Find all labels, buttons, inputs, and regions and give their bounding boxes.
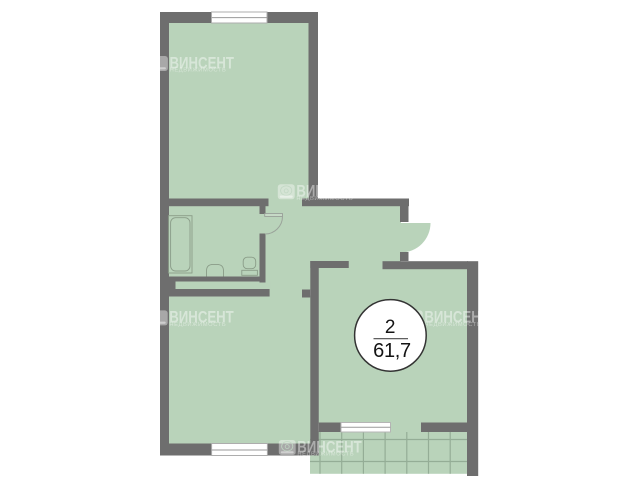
svg-text:61,7: 61,7 bbox=[373, 340, 411, 362]
svg-text:НЕДВИЖИМОСТЬ: НЕДВИЖИМОСТЬ bbox=[170, 68, 227, 74]
svg-text:2: 2 bbox=[385, 317, 396, 338]
svg-text:НЕДВИЖИМОСТЬ: НЕДВИЖИМОСТЬ bbox=[424, 322, 481, 328]
svg-text:НЕДВИЖИМОСТЬ: НЕДВИЖИМОСТЬ bbox=[296, 196, 353, 202]
svg-text:НЕДВИЖИМОСТЬ: НЕДВИЖИМОСТЬ bbox=[297, 452, 354, 458]
svg-text:НЕДВИЖИМОСТЬ: НЕДВИЖИМОСТЬ bbox=[169, 322, 226, 328]
